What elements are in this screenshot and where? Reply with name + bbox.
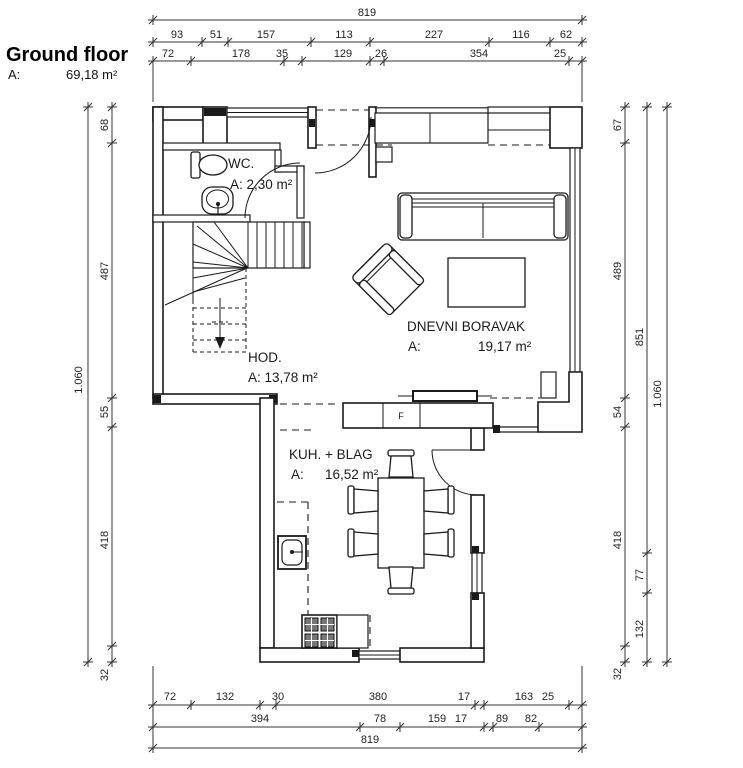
armchair	[351, 242, 425, 316]
dim-left-0: 68	[99, 119, 111, 131]
dim-bot1-1: 132	[216, 691, 234, 703]
dining-table	[378, 478, 424, 568]
chair-back	[348, 486, 354, 514]
wall-wc-east-lower	[297, 166, 304, 218]
floor-plan-page: Ground floor A: 69,18 m² 819 93 51 157 1…	[0, 0, 743, 768]
living-label: DNEVNI BORAVAK	[407, 319, 525, 334]
dim-bot1-3: 380	[369, 691, 387, 703]
dim-left-1: 487	[99, 262, 111, 280]
dim-bot2-0: 394	[251, 713, 269, 725]
dim-top2-5: 116	[512, 29, 530, 41]
toilet-bowl	[199, 155, 227, 175]
dimension-chain-left: 1.060 68 487 55 418 32	[73, 102, 117, 681]
dim-bottom-total: 819	[361, 734, 379, 746]
fridge-label: F	[398, 411, 404, 421]
wall-corner-ne	[550, 107, 582, 148]
dim-right-mid-2: 132	[634, 620, 646, 638]
dim-top3-3: 129	[334, 48, 352, 60]
title-block: Ground floor A: 69,18 m²	[6, 44, 128, 82]
dim-bot2-5: 82	[525, 713, 537, 725]
window-living-north	[488, 107, 550, 113]
wc-label: WC.	[228, 156, 254, 171]
dim-top3-4: 26	[375, 48, 387, 60]
dim-top2-6: 62	[560, 29, 572, 41]
dim-top2-2: 157	[257, 29, 275, 41]
dim-right-total: 1.060	[652, 380, 664, 408]
dim-bot1-0: 72	[164, 691, 176, 703]
kitchen-area-label: A:	[291, 467, 304, 482]
dim-right-0: 67	[612, 119, 624, 131]
hod-label: HOD.	[248, 350, 282, 365]
kitchen-area-value: 16,52 m²	[325, 467, 379, 482]
staircase	[165, 222, 304, 352]
dim-top2-4: 227	[425, 29, 443, 41]
dim-top3-5: 354	[470, 48, 488, 60]
dim-top2-0: 93	[171, 29, 183, 41]
dimension-chain-right: 67 489 54 418 32 851 77 132 1.060	[612, 102, 672, 680]
wall-kitchen-east-low	[471, 593, 484, 648]
dim-right-2: 54	[612, 406, 624, 418]
total-area-label: A:	[8, 67, 20, 82]
dim-top3-0: 72	[162, 48, 174, 60]
hod-room: HOD. A: 13,78 m²	[248, 350, 318, 385]
dim-left-total: 1.060	[73, 366, 85, 394]
counter-peninsula	[343, 403, 493, 428]
wall-kitchen-east-stub	[471, 428, 484, 450]
wall-step-hod	[153, 394, 277, 404]
dim-left-3: 418	[99, 531, 111, 549]
chair	[389, 567, 413, 588]
dim-right-4: 32	[612, 668, 624, 680]
dim-top2-1: 51	[210, 29, 222, 41]
chair	[424, 532, 448, 556]
kitchen-peninsula: F	[343, 391, 493, 428]
wall-jamb-entry-left	[308, 107, 316, 148]
chair	[354, 532, 378, 556]
dim-right-mid-0: 851	[634, 328, 646, 346]
chair	[424, 489, 448, 513]
chair-back	[388, 588, 414, 594]
hod-area: A: 13,78 m²	[248, 370, 318, 385]
dim-bot1-5: 163	[515, 691, 533, 703]
kitchen-label: KUH. + BLAG	[289, 447, 373, 462]
chair-back	[448, 529, 454, 557]
wall-kitchen-south-left	[260, 648, 359, 662]
wall-kitchen-south-right	[400, 648, 484, 662]
dim-top3-1: 178	[232, 48, 250, 60]
wall-wc-north	[163, 143, 280, 150]
dim-bot2-1: 78	[374, 713, 386, 725]
dim-bot1-6: 25	[542, 691, 554, 703]
wall-wc-south	[153, 215, 250, 222]
dim-left-4: 32	[99, 669, 111, 681]
dim-bot1-2: 30	[272, 691, 284, 703]
stair-break-line	[165, 268, 247, 305]
page-title: Ground floor	[6, 44, 128, 66]
dim-bot2-2: 159	[428, 713, 446, 725]
dim-left-2: 55	[99, 406, 111, 418]
total-area-value: 69,18 m²	[66, 67, 118, 82]
kitchen-room: KUH. + BLAG A: 16,52 m²	[277, 447, 454, 648]
coffee-table	[448, 258, 525, 307]
wall-kitchen-west	[260, 398, 274, 648]
living-area-label: A:	[408, 339, 421, 354]
column-living	[541, 372, 556, 398]
dim-bot2-4: 89	[496, 713, 508, 725]
living-room: DNEVNI BORAVAK A: 19,17 m²	[351, 193, 568, 354]
wall-kitchen-east-mid	[471, 495, 484, 553]
dim-right-mid-1: 77	[634, 569, 646, 581]
doors	[245, 117, 477, 495]
wall-west	[153, 107, 163, 398]
chair	[354, 489, 378, 513]
dim-top3-6: 25	[554, 48, 566, 60]
cooktop-hood	[413, 391, 477, 401]
chair-back	[348, 529, 354, 557]
chair-back	[388, 450, 414, 456]
wall-step-entry	[376, 147, 392, 162]
dimension-chain-bottom: 72 132 30 380 17 163 25 394 78 159 17 89…	[148, 666, 587, 753]
stove	[302, 615, 337, 648]
closet-entry	[375, 113, 488, 143]
chair-back	[448, 486, 454, 514]
dim-bot1-4: 17	[458, 691, 470, 703]
counter-module	[337, 615, 368, 648]
wc-area: A: 2,30 m²	[230, 177, 293, 192]
dim-bot2-3: 17	[455, 713, 467, 725]
dim-top2-3: 113	[335, 29, 353, 41]
dim-right-3: 418	[612, 531, 624, 549]
wall-stair-east	[304, 222, 310, 268]
living-area-value: 19,17 m²	[478, 339, 532, 354]
chair	[389, 456, 413, 477]
floor-plan-drawing: Ground floor A: 69,18 m² 819 93 51 157 1…	[0, 0, 743, 768]
dimension-chain-top: 819 93 51 157 113 227 116 62 72 178 35 1…	[148, 7, 587, 102]
wc-sink-faucet	[216, 202, 220, 206]
dim-top-total: 819	[358, 7, 376, 19]
dim-top3-2: 35	[276, 48, 288, 60]
dim-right-1: 489	[612, 262, 624, 280]
